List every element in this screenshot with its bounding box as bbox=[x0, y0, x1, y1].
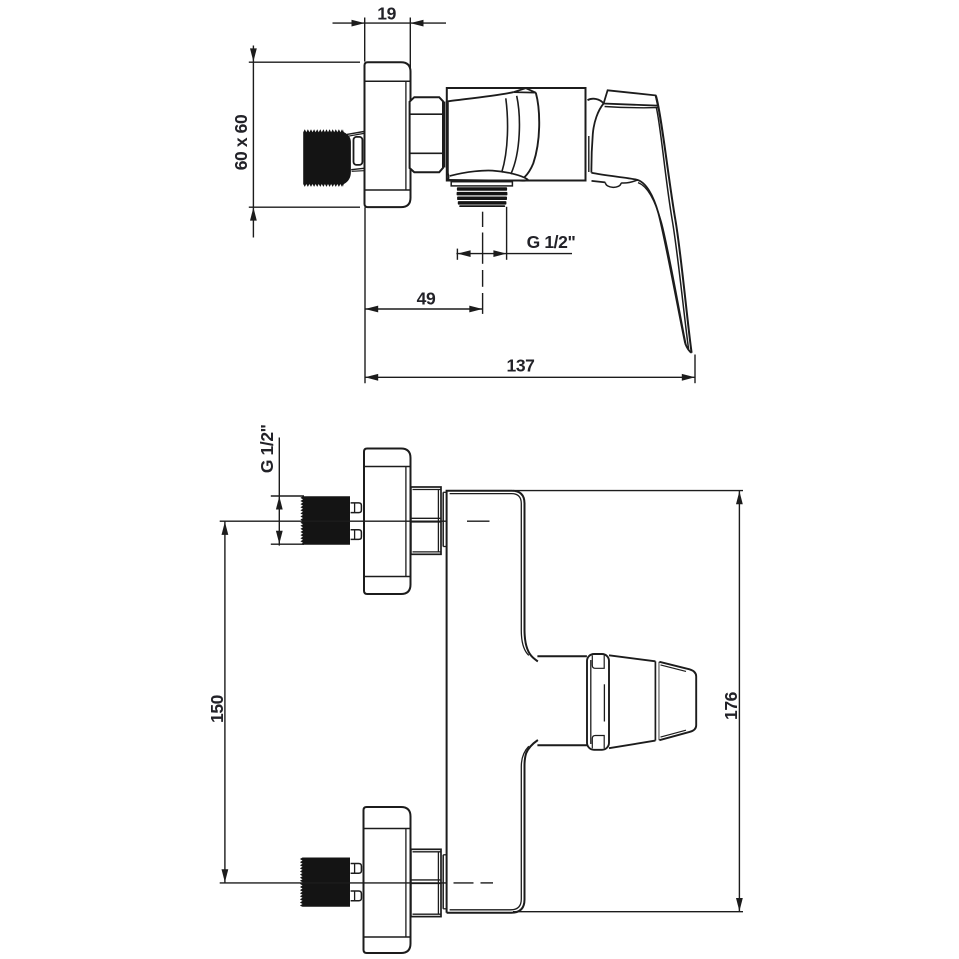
svg-text:60 x 60: 60 x 60 bbox=[231, 114, 251, 170]
svg-text:G 1/2": G 1/2" bbox=[257, 424, 277, 473]
svg-text:19: 19 bbox=[377, 4, 396, 24]
svg-text:150: 150 bbox=[207, 694, 227, 723]
svg-text:G 1/2": G 1/2" bbox=[527, 232, 576, 252]
svg-text:49: 49 bbox=[417, 288, 436, 308]
svg-text:176: 176 bbox=[721, 691, 741, 720]
svg-text:137: 137 bbox=[507, 355, 535, 375]
